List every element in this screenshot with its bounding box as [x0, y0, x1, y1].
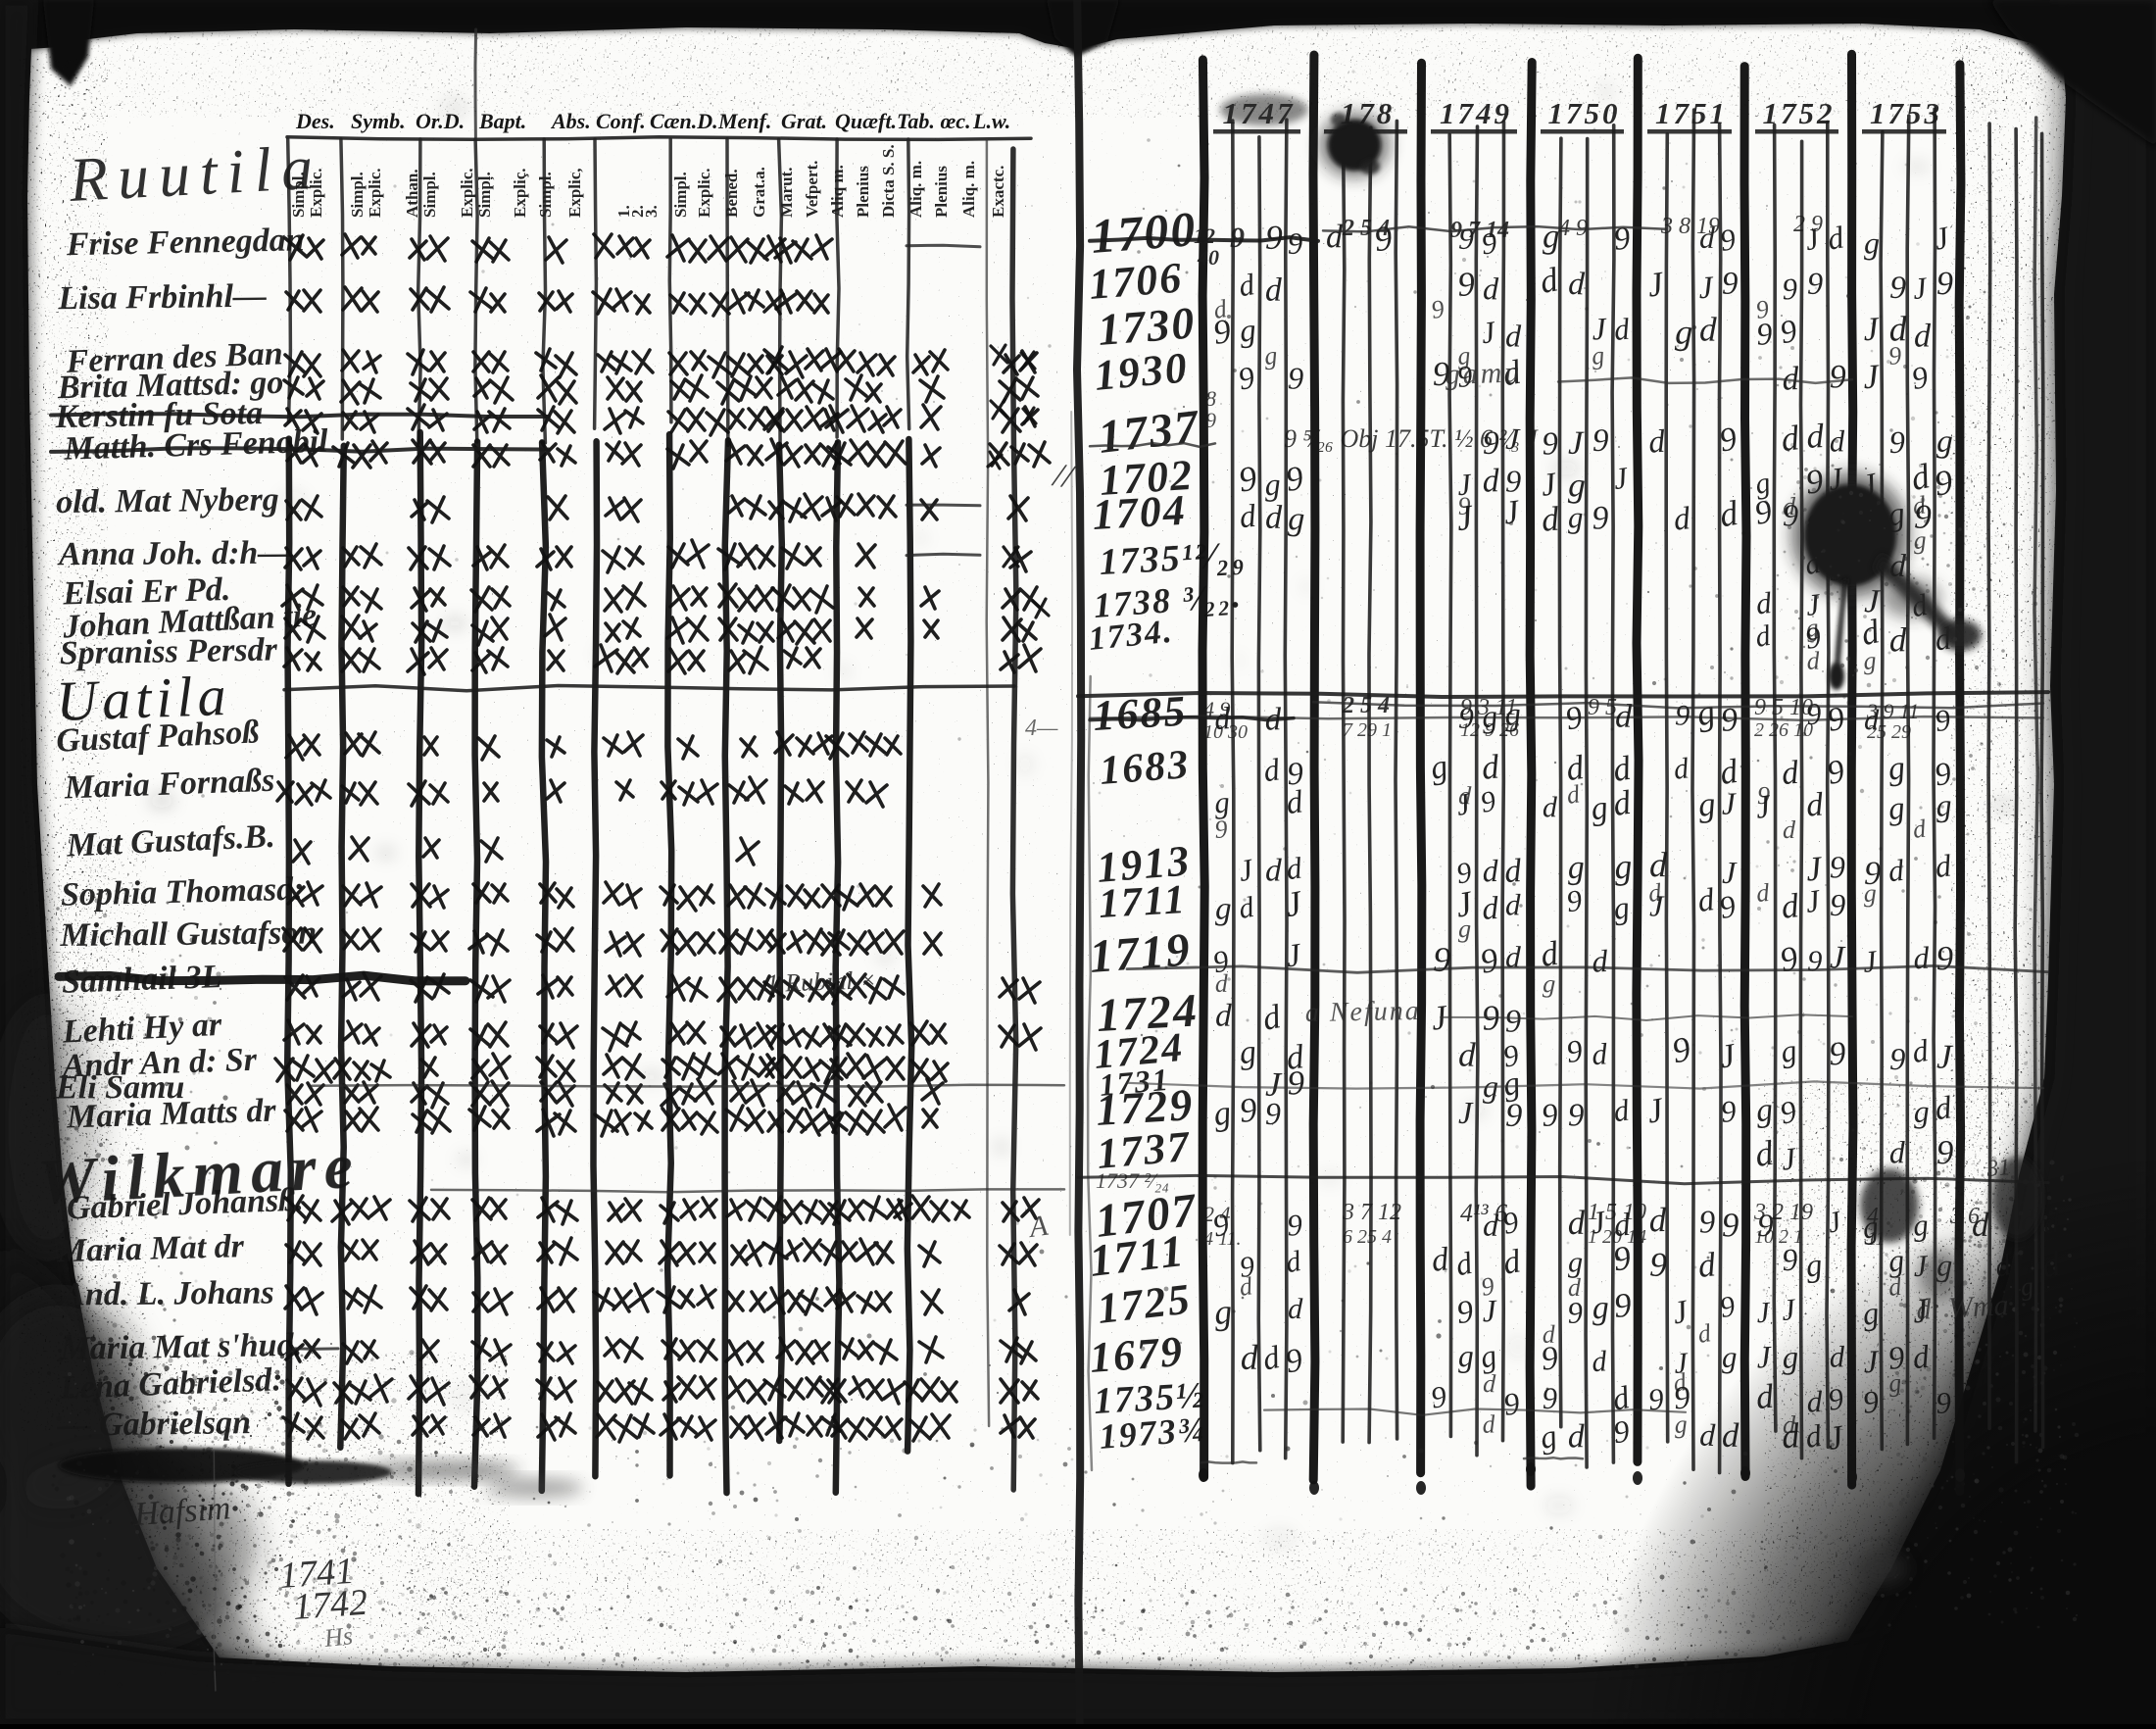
svg-text:1973¾: 1973¾: [1098, 1409, 1207, 1457]
svg-text:Aliq. m.: Aliq. m.: [959, 161, 978, 218]
svg-text:d: d: [1505, 318, 1522, 353]
svg-text:g: g: [1935, 787, 1953, 823]
svg-text:d: d: [1783, 815, 1796, 844]
svg-text:Hs: Hs: [322, 1621, 355, 1653]
svg-text:9: 9: [1935, 939, 1954, 978]
svg-text:d: d: [1647, 424, 1666, 461]
svg-text:4 11.: 4 11.: [1203, 1228, 1242, 1250]
svg-text:g: g: [1457, 1338, 1474, 1373]
svg-text:40: 40: [1197, 245, 1219, 270]
svg-text:d: d: [1568, 267, 1586, 303]
svg-text:g: g: [1592, 1290, 1609, 1326]
svg-text:9: 9: [1782, 272, 1798, 307]
svg-text:J: J: [1936, 1038, 1953, 1076]
svg-text:Explic.: Explic.: [458, 168, 476, 218]
svg-text:J: J: [1649, 888, 1665, 922]
svg-text:g: g: [1862, 646, 1877, 675]
svg-text:1679: 1679: [1088, 1327, 1185, 1382]
svg-text:6 25 4: 6 25 4: [1343, 1226, 1392, 1248]
svg-text:9: 9: [1568, 1098, 1585, 1133]
svg-text:Simpl.: Simpl.: [671, 172, 690, 218]
svg-text:Plenius: Plenius: [854, 166, 872, 218]
svg-text:1753: 1753: [1870, 96, 1942, 130]
svg-text:4—: 4—: [1025, 716, 1058, 741]
svg-text:g: g: [1263, 341, 1279, 370]
svg-text:Explic.: Explic.: [366, 168, 384, 218]
svg-text:J: J: [1458, 1095, 1474, 1130]
svg-text:d: d: [1567, 1418, 1586, 1455]
svg-text:d: d: [1240, 1338, 1259, 1377]
svg-text:1700: 1700: [1089, 201, 1199, 264]
svg-text:d: d: [1482, 463, 1500, 500]
svg-text:9: 9: [1433, 940, 1451, 979]
svg-text:9: 9: [1807, 266, 1823, 301]
svg-text:g: g: [1913, 1093, 1930, 1129]
svg-text:12 9 26: 12 9 26: [1460, 719, 1519, 741]
svg-text:d: d: [1215, 998, 1232, 1033]
svg-text:g: g: [1782, 1340, 1799, 1376]
svg-text:d: d: [1806, 1384, 1823, 1418]
svg-text:9: 9: [1504, 1004, 1522, 1039]
svg-text:d: d: [1288, 1293, 1304, 1325]
svg-text:g: g: [1568, 466, 1586, 504]
svg-text:d: d: [1648, 1201, 1667, 1239]
svg-text:1685: 1685: [1092, 686, 1189, 739]
svg-text:9: 9: [1287, 1063, 1305, 1103]
svg-text:9: 9: [1265, 1096, 1281, 1131]
svg-text:g: g: [1288, 501, 1305, 538]
svg-text:3 7 12: 3 7 12: [1342, 1200, 1401, 1225]
svg-text:gamu: gamu: [1445, 356, 1523, 391]
svg-text:9: 9: [1936, 266, 1953, 302]
svg-text:d: d: [1265, 500, 1283, 536]
svg-text:9: 9: [1456, 265, 1476, 304]
svg-text:4¹³ 6: 4¹³ 6: [1460, 1199, 1507, 1227]
svg-text:9: 9: [1830, 887, 1845, 922]
svg-text:9: 9: [1698, 1205, 1715, 1240]
svg-text:9 ⁵⁄₂₆ Obj 17.5T. ½ 6 ²⁄₃ J: 9 ⁵⁄₂₆ Obj 17.5T. ½ 6 ²⁄₃ J: [1284, 424, 1539, 453]
svg-text:1742: 1742: [292, 1582, 369, 1628]
svg-text:g: g: [1264, 467, 1281, 503]
svg-text:g: g: [1864, 224, 1880, 260]
svg-text:d: Wma: d: Wma: [1916, 1289, 2010, 1326]
svg-text:Plenius: Plenius: [932, 166, 951, 218]
svg-text:d: d: [1914, 319, 1932, 355]
svg-text:d: d: [1912, 940, 1931, 976]
svg-text:g: g: [1458, 914, 1471, 943]
svg-text:g: g: [1863, 879, 1877, 908]
svg-text:Grat.a.: Grat.a.: [750, 167, 768, 218]
svg-text:9: 9: [1567, 1295, 1584, 1330]
svg-text:Expliç.: Expliç.: [511, 168, 529, 218]
svg-text:9 5 10: 9 5 10: [1754, 695, 1813, 720]
svg-text:9: 9: [1541, 1098, 1560, 1134]
svg-text:d: d: [1722, 1416, 1739, 1455]
svg-text:9: 9: [1828, 1036, 1846, 1073]
svg-text:1719: 1719: [1088, 923, 1194, 983]
svg-text:10 30: 10 30: [1203, 721, 1248, 743]
svg-text:9: 9: [1286, 1208, 1303, 1243]
svg-text:9 3 11: 9 3 11: [1460, 695, 1517, 720]
svg-text:9: 9: [1889, 424, 1906, 460]
svg-text:7 29 1: 7 29 1: [1343, 719, 1392, 741]
svg-text:Conf.: Conf.: [596, 109, 646, 133]
svg-text:9: 9: [1887, 341, 1903, 370]
svg-text:Grat.: Grat.: [781, 109, 827, 133]
svg-text:1751: 1751: [1655, 96, 1728, 130]
svg-text:d: d: [1591, 1036, 1608, 1071]
svg-text:d: d: [1265, 853, 1282, 888]
svg-text:9: 9: [1230, 222, 1245, 254]
svg-text:d: d: [1505, 887, 1521, 921]
svg-text:9: 9: [1238, 1090, 1258, 1129]
svg-text:g: g: [1754, 1092, 1775, 1129]
svg-text:3 6: 3 6: [1949, 1204, 1980, 1229]
svg-text:Cæn.D.: Cæn.D.: [650, 109, 718, 133]
svg-text:d: d: [1265, 272, 1283, 309]
svg-text:9: 9: [1889, 1041, 1906, 1076]
svg-text:J: J: [1568, 425, 1585, 462]
svg-text:Symb.: Symb.: [351, 109, 406, 133]
svg-text:g: g: [1675, 312, 1693, 351]
svg-text:d: d: [1214, 969, 1229, 998]
svg-text:g: g: [1543, 969, 1556, 998]
svg-text:d: d: [1805, 417, 1825, 456]
svg-text:g: g: [1722, 1340, 1738, 1374]
svg-text:a Nefuna: a Nefuna: [1305, 996, 1421, 1028]
svg-text:d: d: [1889, 1134, 1907, 1169]
svg-text:d: d: [1483, 271, 1499, 306]
svg-text:1704: 1704: [1091, 486, 1188, 539]
svg-text:9: 9: [1542, 426, 1559, 463]
svg-text:d: d: [1806, 646, 1821, 675]
svg-text:1930: 1930: [1093, 343, 1191, 400]
svg-text:1749: 1749: [1440, 96, 1512, 130]
svg-text:Tab. œc.: Tab. œc.: [897, 109, 971, 133]
svg-text:d: d: [1699, 310, 1717, 348]
svg-text:d: d: [1829, 1339, 1845, 1373]
svg-text:d: d: [1829, 423, 1845, 458]
svg-text:Hafsim: Hafsim: [132, 1490, 232, 1533]
svg-text:g: g: [1613, 847, 1633, 887]
svg-text:2 5 4: 2 5 4: [1342, 216, 1390, 241]
svg-text:4 9: 4 9: [1203, 697, 1231, 721]
svg-text:9: 9: [1213, 815, 1228, 844]
svg-text:9: 9: [1288, 360, 1304, 395]
svg-text:d: d: [1543, 791, 1558, 823]
svg-text:9: 9: [1592, 423, 1609, 459]
svg-text:Simpl.: Simpl.: [420, 172, 439, 218]
svg-text:d: d: [1483, 1369, 1497, 1398]
svg-text:g: g: [1674, 1409, 1688, 1439]
svg-text:2 9: 2 9: [1793, 212, 1823, 237]
svg-text:3 8 19: 3 8 19: [1660, 214, 1720, 239]
svg-text:Quæft.: Quæft.: [835, 109, 897, 133]
svg-text:Or.D.: Or.D.: [416, 109, 465, 133]
svg-text:1 5 10: 1 5 10: [1588, 1200, 1646, 1225]
svg-text:g: g: [1238, 313, 1257, 349]
svg-text:9: 9: [1612, 1286, 1633, 1325]
svg-text:1750: 1750: [1548, 96, 1621, 130]
svg-text:9: 9: [1829, 359, 1846, 395]
svg-text:3 9 11: 3 9 11: [1866, 699, 1919, 723]
svg-text:g: g: [1543, 217, 1560, 255]
svg-text:1 Rubinl ×: 1 Rubinl ×: [765, 965, 877, 998]
svg-text:Dicta S. S.: Dicta S. S.: [879, 144, 898, 218]
svg-text:9: 9: [1781, 1241, 1798, 1277]
svg-text:9: 9: [1287, 226, 1302, 261]
svg-text:9: 9: [1649, 1246, 1668, 1285]
svg-text:Bened.: Bened.: [722, 169, 741, 218]
svg-text:9 5: 9 5: [1588, 695, 1617, 720]
svg-text:d: d: [1591, 943, 1609, 979]
svg-text:d: d: [1482, 1409, 1497, 1439]
svg-text:g: g: [1215, 892, 1232, 927]
svg-text:9: 9: [1936, 1133, 1954, 1171]
svg-text:J: J: [1863, 1345, 1880, 1381]
svg-text:g: g: [1568, 500, 1584, 534]
svg-text:3 2 19: 3 2 19: [1753, 1200, 1813, 1225]
svg-text:25 29: 25 29: [1867, 721, 1911, 743]
svg-text:d: d: [1699, 1417, 1717, 1453]
svg-text:Exactc.: Exactc.: [989, 166, 1007, 218]
svg-text:Des.: Des.: [295, 109, 335, 133]
svg-text:d: d: [1481, 891, 1499, 927]
svg-text:g: g: [1567, 850, 1585, 886]
svg-text:3.: 3.: [642, 205, 661, 218]
svg-text:9: 9: [1755, 316, 1773, 352]
svg-text:Explic,: Explic,: [565, 168, 584, 218]
svg-text:Vefpert.: Vefpert.: [803, 161, 821, 218]
svg-text:9: 9: [1889, 271, 1907, 307]
svg-text:d: d: [1567, 1204, 1586, 1242]
svg-text:1711: 1711: [1098, 877, 1188, 927]
svg-text:Menf.: Menf.: [717, 109, 771, 133]
svg-text:2 4: 2 4: [1203, 1202, 1231, 1226]
svg-text:d: d: [1482, 853, 1499, 888]
svg-text:9: 9: [1722, 267, 1739, 302]
svg-text:9: 9: [1591, 500, 1609, 537]
svg-text:g: g: [1913, 525, 1927, 555]
svg-text:d: d: [1326, 219, 1344, 255]
svg-text:d: d: [1889, 620, 1908, 659]
svg-text:Bapt.: Bapt.: [478, 109, 526, 133]
svg-text:9: 9: [1675, 699, 1690, 731]
svg-text:9: 9: [1935, 1385, 1952, 1420]
svg-text:1683: 1683: [1099, 742, 1192, 794]
svg-text:9: 9: [1205, 408, 1216, 432]
svg-text:9: 9: [1722, 1206, 1739, 1244]
svg-text:g: g: [1213, 1292, 1234, 1332]
svg-text:Simpl.: Simpl.: [348, 172, 367, 218]
svg-text:d: d: [1458, 1035, 1476, 1073]
svg-text:Abs.: Abs.: [550, 109, 591, 133]
svg-text:L.w.: L.w.: [972, 109, 1010, 133]
svg-text:9: 9: [1830, 849, 1845, 884]
svg-text:J: J: [1722, 855, 1738, 890]
svg-text:2 26 10: 2 26 10: [1754, 719, 1813, 741]
svg-text:9: 9: [1505, 1098, 1523, 1134]
svg-text:9: 9: [1807, 945, 1823, 977]
svg-text:Explic.: Explic.: [695, 168, 713, 218]
svg-text:g: g: [1936, 424, 1953, 460]
